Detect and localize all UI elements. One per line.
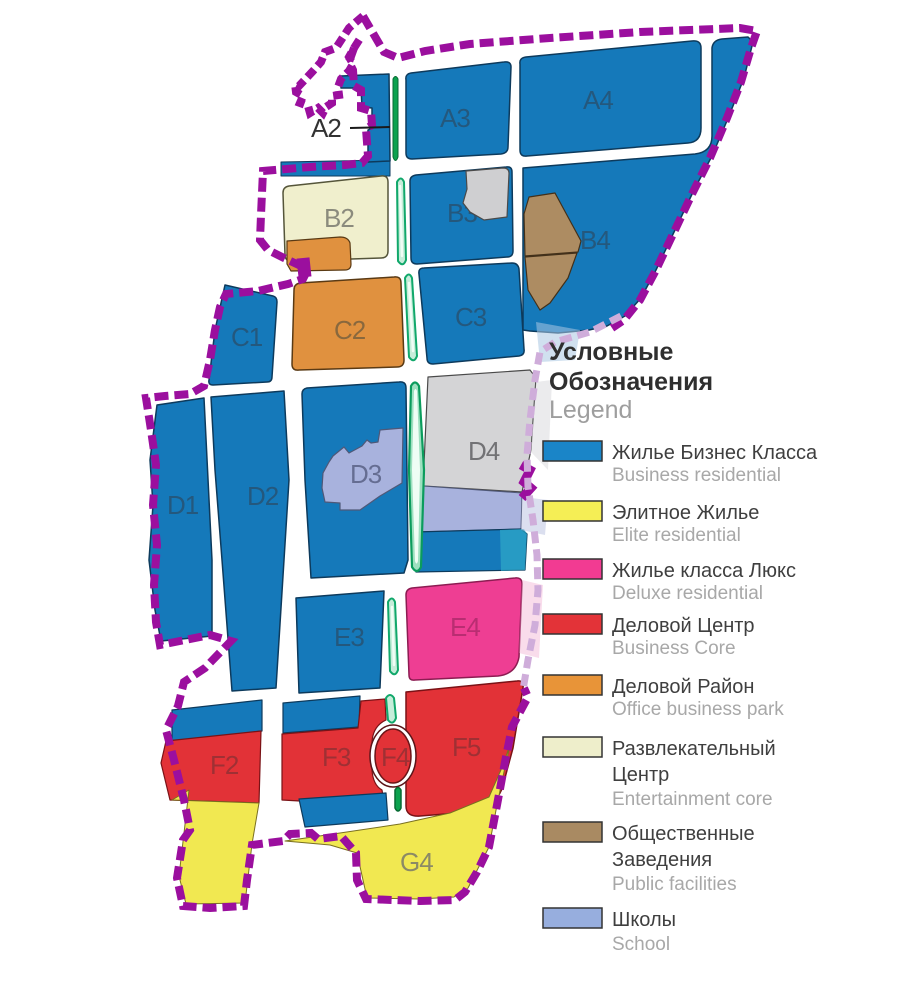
svg-text:Элитное Жилье: Элитное Жилье — [612, 502, 759, 524]
svg-text:Деловой Центр: Деловой Центр — [612, 615, 755, 637]
svg-text:Заведения: Заведения — [612, 849, 712, 871]
svg-text:F4: F4 — [381, 742, 410, 772]
svg-text:Школы: Школы — [612, 909, 676, 931]
svg-text:B4: B4 — [580, 225, 610, 255]
svg-text:F5: F5 — [452, 732, 481, 762]
svg-text:F2: F2 — [210, 750, 239, 780]
svg-text:Office business park: Office business park — [612, 699, 784, 720]
svg-text:C2: C2 — [334, 315, 366, 345]
svg-text:A3: A3 — [440, 103, 470, 133]
svg-text:E3: E3 — [334, 622, 364, 652]
svg-text:Public facilities: Public facilities — [612, 874, 737, 895]
svg-text:B2: B2 — [324, 203, 354, 233]
svg-text:E4: E4 — [450, 612, 480, 642]
svg-text:Elite residential: Elite residential — [612, 525, 741, 546]
svg-text:A2: A2 — [311, 113, 341, 143]
svg-text:A4: A4 — [583, 85, 613, 115]
svg-text:Business residential: Business residential — [612, 465, 781, 486]
svg-text:D4: D4 — [468, 436, 500, 466]
svg-text:Развлекательный: Развлекательный — [612, 738, 776, 760]
svg-text:D2: D2 — [247, 481, 279, 511]
svg-text:Общественные: Общественные — [612, 823, 755, 845]
svg-text:D1: D1 — [167, 490, 199, 520]
svg-text:Business Core: Business Core — [612, 638, 736, 659]
svg-text:C3: C3 — [455, 302, 487, 332]
svg-text:Условные: Условные — [549, 338, 674, 366]
svg-text:Legend: Legend — [549, 396, 632, 424]
svg-text:F3: F3 — [322, 742, 351, 772]
svg-text:G4: G4 — [400, 847, 433, 877]
svg-text:Жилье Бизнес Класса: Жилье Бизнес Класса — [612, 442, 818, 464]
svg-text:School: School — [612, 934, 670, 955]
svg-text:Entertainment core: Entertainment core — [612, 789, 773, 810]
svg-text:Центр: Центр — [612, 764, 669, 786]
svg-text:C1: C1 — [231, 322, 263, 352]
svg-text:Деловой Район: Деловой Район — [612, 676, 754, 698]
svg-text:D3: D3 — [350, 459, 382, 489]
svg-text:Обозначения: Обозначения — [549, 368, 713, 396]
svg-text:Deluxe residential: Deluxe residential — [612, 583, 763, 604]
svg-text:Жилье класса Люкс: Жилье класса Люкс — [612, 560, 796, 582]
